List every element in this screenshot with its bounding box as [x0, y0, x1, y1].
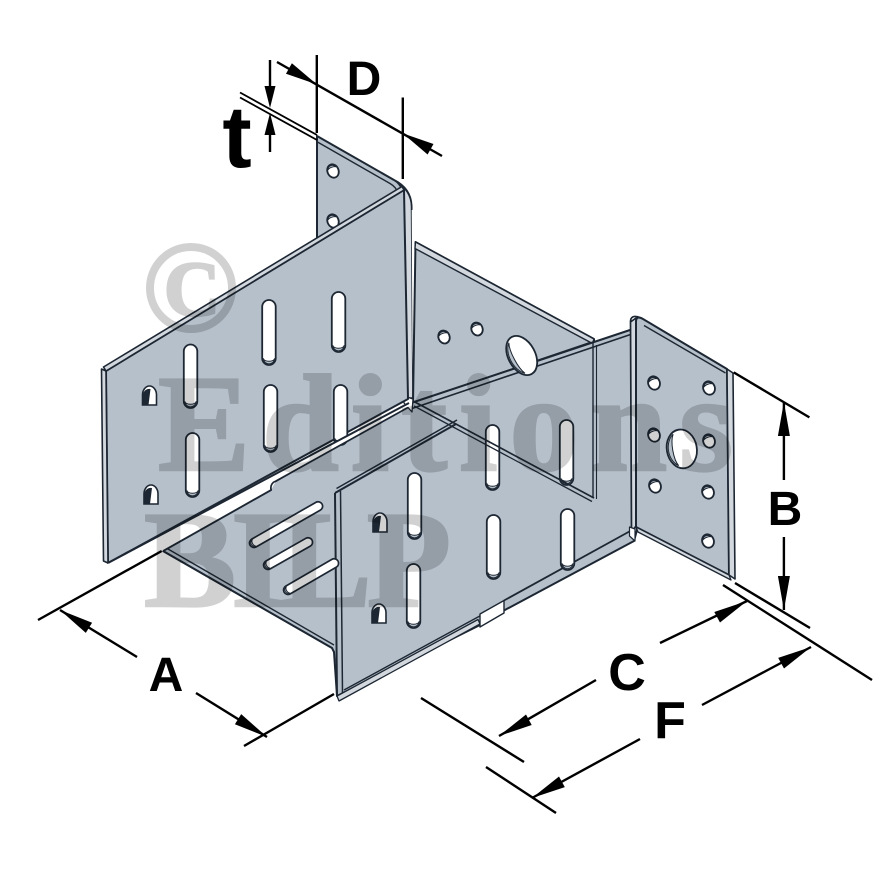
svg-text:Editions: Editions — [158, 347, 745, 500]
svg-text:t: t — [222, 87, 251, 186]
svg-text:C: C — [608, 644, 646, 702]
svg-text:B: B — [768, 483, 803, 536]
svg-text:F: F — [654, 692, 686, 750]
svg-text:C: C — [164, 245, 220, 332]
svg-text:D: D — [347, 53, 382, 106]
svg-text:A: A — [149, 649, 184, 702]
svg-text:BILP: BILP — [144, 483, 448, 636]
